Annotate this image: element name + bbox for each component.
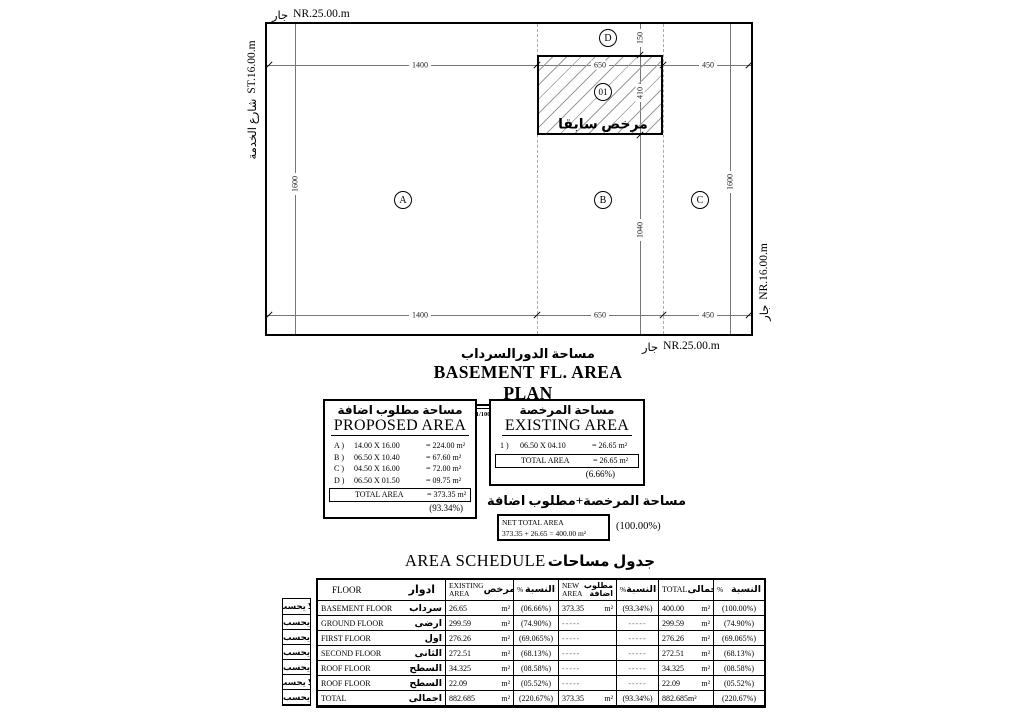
zone-bubble-b: B xyxy=(594,191,612,209)
east-boundary-label-ar: جار xyxy=(757,305,771,321)
top-dimension-line xyxy=(267,65,751,66)
existing-area-title: EXISTING AREA xyxy=(502,417,632,436)
dim-top-450: 450 xyxy=(699,61,717,70)
header-new-percent: % النسبة xyxy=(616,580,658,600)
north-boundary-label: جار NR.25.00.m xyxy=(272,8,350,22)
west-street-label: شارع الخدمة ST.16.00.m xyxy=(244,25,260,175)
north-boundary-label-ar: جار xyxy=(272,8,288,22)
row-existing-cell: 276.26m² xyxy=(445,630,513,645)
proposed-total-label: TOTAL AREA xyxy=(355,489,427,501)
flag-cell: يحسب xyxy=(283,629,310,644)
header-total: TOTAL اجمالى xyxy=(658,580,713,600)
row-new-pct-cell: ----- xyxy=(616,660,658,675)
zone-bubble-c: C xyxy=(691,191,709,209)
row-total-pct-cell: (08.58%) xyxy=(713,660,764,675)
schedule-title: AREA SCHEDULE xyxy=(405,551,546,571)
proposed-area-title-arabic: مساحة مطلوب اضافة xyxy=(325,403,475,417)
row-new-cell: ----- xyxy=(558,660,616,675)
area-schedule-table: FLOOR ادوار EXISTING AREA مرخص % النسبة … xyxy=(316,578,766,708)
header-existing-percent: % النسبة xyxy=(513,580,558,600)
proposed-total-value: = 373.35 m² xyxy=(427,489,470,501)
existing-total-value: = 26.65 m² xyxy=(593,455,638,467)
north-boundary-label-en: NR.25.00.m xyxy=(293,8,350,22)
proposed-item-row: D )06.50 X 01.50= 09.75 m² xyxy=(325,475,475,487)
hatch-area-label: مرخص سابقا xyxy=(558,117,648,134)
row-total-pct-cell: (100.00%) xyxy=(713,600,764,615)
proposed-item-result: = 09.75 m² xyxy=(426,475,475,487)
row-total-cell: 276.26m² xyxy=(658,630,713,645)
row-total-pct-cell: (68.13%) xyxy=(713,645,764,660)
row-total-pct-cell: (220.67%) xyxy=(713,690,764,705)
row-new-cell: ----- xyxy=(558,675,616,690)
net-total-caption-arabic: مساحة المرخصة+مطلوب اضافة xyxy=(487,493,686,509)
proposed-item-id: A ) xyxy=(334,440,354,452)
plan-title-arabic: مساحة الدورالسرداب xyxy=(422,346,634,362)
proposed-item-id: D ) xyxy=(334,475,354,487)
east-boundary-label-en: NR.16.00.m xyxy=(758,243,770,300)
row-total-cell: 34.325m² xyxy=(658,660,713,675)
south-boundary-label-ar: جار xyxy=(642,340,658,354)
proposed-item-dims: 06.50 X 01.50 xyxy=(354,475,426,487)
header-existing-area: EXISTING AREA مرخص xyxy=(445,580,513,600)
row-new-cell: ----- xyxy=(558,645,616,660)
flag-cell: يحسب xyxy=(283,689,310,704)
proposed-area-items: A )14.00 X 16.00= 224.00 m²B )06.50 X 10… xyxy=(325,440,475,486)
proposed-percent: (93.34%) xyxy=(325,503,475,513)
schedule-heading: AREA SCHEDULE جدول مساحات xyxy=(330,551,730,571)
schedule-flags-column: لا يحسبيحسبيحسبيحسبيحسبلا يحسبيحسب xyxy=(282,598,311,706)
proposed-item-dims: 14.00 X 16.00 xyxy=(354,440,426,452)
row-existing-cell: 299.59m² xyxy=(445,615,513,630)
proposed-area-box: مساحة مطلوب اضافة PROPOSED AREA A )14.00… xyxy=(323,399,477,519)
proposed-item-row: C )04.50 X 16.00= 72.00 m² xyxy=(325,463,475,475)
existing-percent: (6.66%) xyxy=(491,469,643,479)
net-total-equation: 373.35 + 26.65 = 400.00 m² xyxy=(502,528,605,539)
existing-item-row: 1 )06.50 X 04.10= 26.65 m² xyxy=(491,440,643,452)
row-new-cell: ----- xyxy=(558,615,616,630)
row-existing-cell: 26.65m² xyxy=(445,600,513,615)
existing-total-row: TOTAL AREA = 26.65 m² xyxy=(495,454,639,468)
row-total-cell: 400.00m² xyxy=(658,600,713,615)
row-new-pct-cell: ----- xyxy=(616,630,658,645)
flag-cell: يحسب xyxy=(283,659,310,674)
proposed-item-row: B )06.50 X 10.40= 67.60 m² xyxy=(325,452,475,464)
dim-top-1400: 1400 xyxy=(409,61,431,70)
proposed-item-dims: 04.50 X 16.00 xyxy=(354,463,426,475)
south-boundary-label-en: NR.25.00.m xyxy=(663,340,720,354)
proposed-item-id: C ) xyxy=(334,463,354,475)
row-total-pct-cell: (69.065%) xyxy=(713,630,764,645)
header-new-area: NEW AREA مطلوب اضافة xyxy=(558,580,616,600)
row-new-pct-cell: ----- xyxy=(616,645,658,660)
dim-mid-1040: 1040 xyxy=(636,219,645,241)
proposed-item-id: B ) xyxy=(334,452,354,464)
row-existing-pct-cell: (06.66%) xyxy=(513,600,558,615)
row-existing-pct-cell: (08.58%) xyxy=(513,660,558,675)
row-existing-cell: 22.09m² xyxy=(445,675,513,690)
row-total-cell: 272.51m² xyxy=(658,645,713,660)
row-existing-pct-cell: (05.52%) xyxy=(513,675,558,690)
grid-dashed-line-right xyxy=(663,24,664,334)
row-total-pct-cell: (74.90%) xyxy=(713,615,764,630)
existing-area-title-arabic: مساحة المرخصة xyxy=(491,403,643,417)
flag-cell: لا يحسب xyxy=(283,599,310,614)
flag-cell: يحسب xyxy=(283,644,310,659)
row-existing-pct-cell: (220.67%) xyxy=(513,690,558,705)
net-total-box: NET TOTAL AREA 373.35 + 26.65 = 400.00 m… xyxy=(497,514,610,541)
row-new-pct-cell: (93.34%) xyxy=(616,600,658,615)
row-floor-cell: FIRST FLOORاول xyxy=(318,630,445,645)
row-new-cell: ----- xyxy=(558,630,616,645)
dim-tick xyxy=(745,61,752,68)
existing-item-result: = 26.65 m² xyxy=(592,440,643,452)
row-new-pct-cell: ----- xyxy=(616,675,658,690)
net-total-label: NET TOTAL AREA xyxy=(502,517,605,528)
flag-cell: لا يحسب xyxy=(283,674,310,689)
dim-bottom-650: 650 xyxy=(591,311,609,320)
dim-top-650: 650 xyxy=(591,61,609,70)
row-existing-pct-cell: (69.065%) xyxy=(513,630,558,645)
row-total-cell: 22.09m² xyxy=(658,675,713,690)
row-total-cell: 299.59m² xyxy=(658,615,713,630)
proposed-total-row: TOTAL AREA = 373.35 m² xyxy=(329,488,471,502)
row-new-cell: 373.35m² xyxy=(558,690,616,705)
proposed-item-result: = 72.00 m² xyxy=(426,463,475,475)
zone-bubble-a: A xyxy=(394,191,412,209)
row-total-pct-cell: (05.52%) xyxy=(713,675,764,690)
proposed-area-title: PROPOSED AREA xyxy=(331,417,469,436)
dim-mid-410: 410 xyxy=(636,84,645,102)
existing-item-dims: 06.50 X 04.10 xyxy=(520,440,592,452)
row-existing-cell: 34.325m² xyxy=(445,660,513,675)
row-floor-cell: ROOF FLOORالسطح xyxy=(318,660,445,675)
row-floor-cell: ROOF FLOORالسطح xyxy=(318,675,445,690)
east-boundary-label: جار NR.16.00.m xyxy=(756,234,772,330)
row-floor-cell: GROUND FLOORارضى xyxy=(318,615,445,630)
row-total-cell: 882.685m² xyxy=(658,690,713,705)
row-floor-cell: TOTALاجمالى xyxy=(318,690,445,705)
dim-bottom-450: 450 xyxy=(699,311,717,320)
dim-right-1600: 1600 xyxy=(726,171,735,193)
row-floor-cell: SECOND FLOORالثانى xyxy=(318,645,445,660)
proposed-item-result: = 224.00 m² xyxy=(426,440,475,452)
existing-item-id: 1 ) xyxy=(500,440,520,452)
existing-area-items: 1 )06.50 X 04.10= 26.65 m² xyxy=(491,440,643,452)
header-total-percent: % النسبة xyxy=(713,580,764,600)
west-street-label-en: ST.16.00.m xyxy=(246,40,258,93)
existing-total-label: TOTAL AREA xyxy=(521,455,593,467)
dim-left-1600: 1600 xyxy=(291,173,300,195)
net-total-percent: (100.00%) xyxy=(616,521,661,532)
hatch-number-bubble: 01 xyxy=(594,83,612,101)
row-floor-cell: BASEMENT FLOORسرداب xyxy=(318,600,445,615)
row-new-cell: 373.35m² xyxy=(558,600,616,615)
row-new-pct-cell: ----- xyxy=(616,615,658,630)
header-floor: FLOOR ادوار xyxy=(318,580,445,600)
dim-mid-150: 150 xyxy=(636,29,645,47)
row-existing-cell: 882.685m² xyxy=(445,690,513,705)
existing-area-box: مساحة المرخصة EXISTING AREA 1 )06.50 X 0… xyxy=(489,399,645,486)
proposed-item-result: = 67.60 m² xyxy=(426,452,475,464)
schedule-title-arabic: جدول مساحات xyxy=(548,552,655,571)
row-existing-pct-cell: (74.90%) xyxy=(513,615,558,630)
west-street-label-ar: شارع الخدمة xyxy=(245,99,259,160)
row-existing-cell: 272.51m² xyxy=(445,645,513,660)
flag-cell: يحسب xyxy=(283,614,310,629)
dim-tick xyxy=(745,311,752,318)
bottom-dimension-line xyxy=(267,315,751,316)
row-new-pct-cell: (93.34%) xyxy=(616,690,658,705)
proposed-item-row: A )14.00 X 16.00= 224.00 m² xyxy=(325,440,475,452)
dim-bottom-1400: 1400 xyxy=(409,311,431,320)
row-existing-pct-cell: (68.13%) xyxy=(513,645,558,660)
south-boundary-label: جار NR.25.00.m xyxy=(642,340,720,354)
basement-floor-plan: مرخص سابقا 1400 650 450 1400 650 450 160… xyxy=(265,22,753,336)
zone-bubble-d: D xyxy=(599,29,617,47)
proposed-item-dims: 06.50 X 10.40 xyxy=(354,452,426,464)
